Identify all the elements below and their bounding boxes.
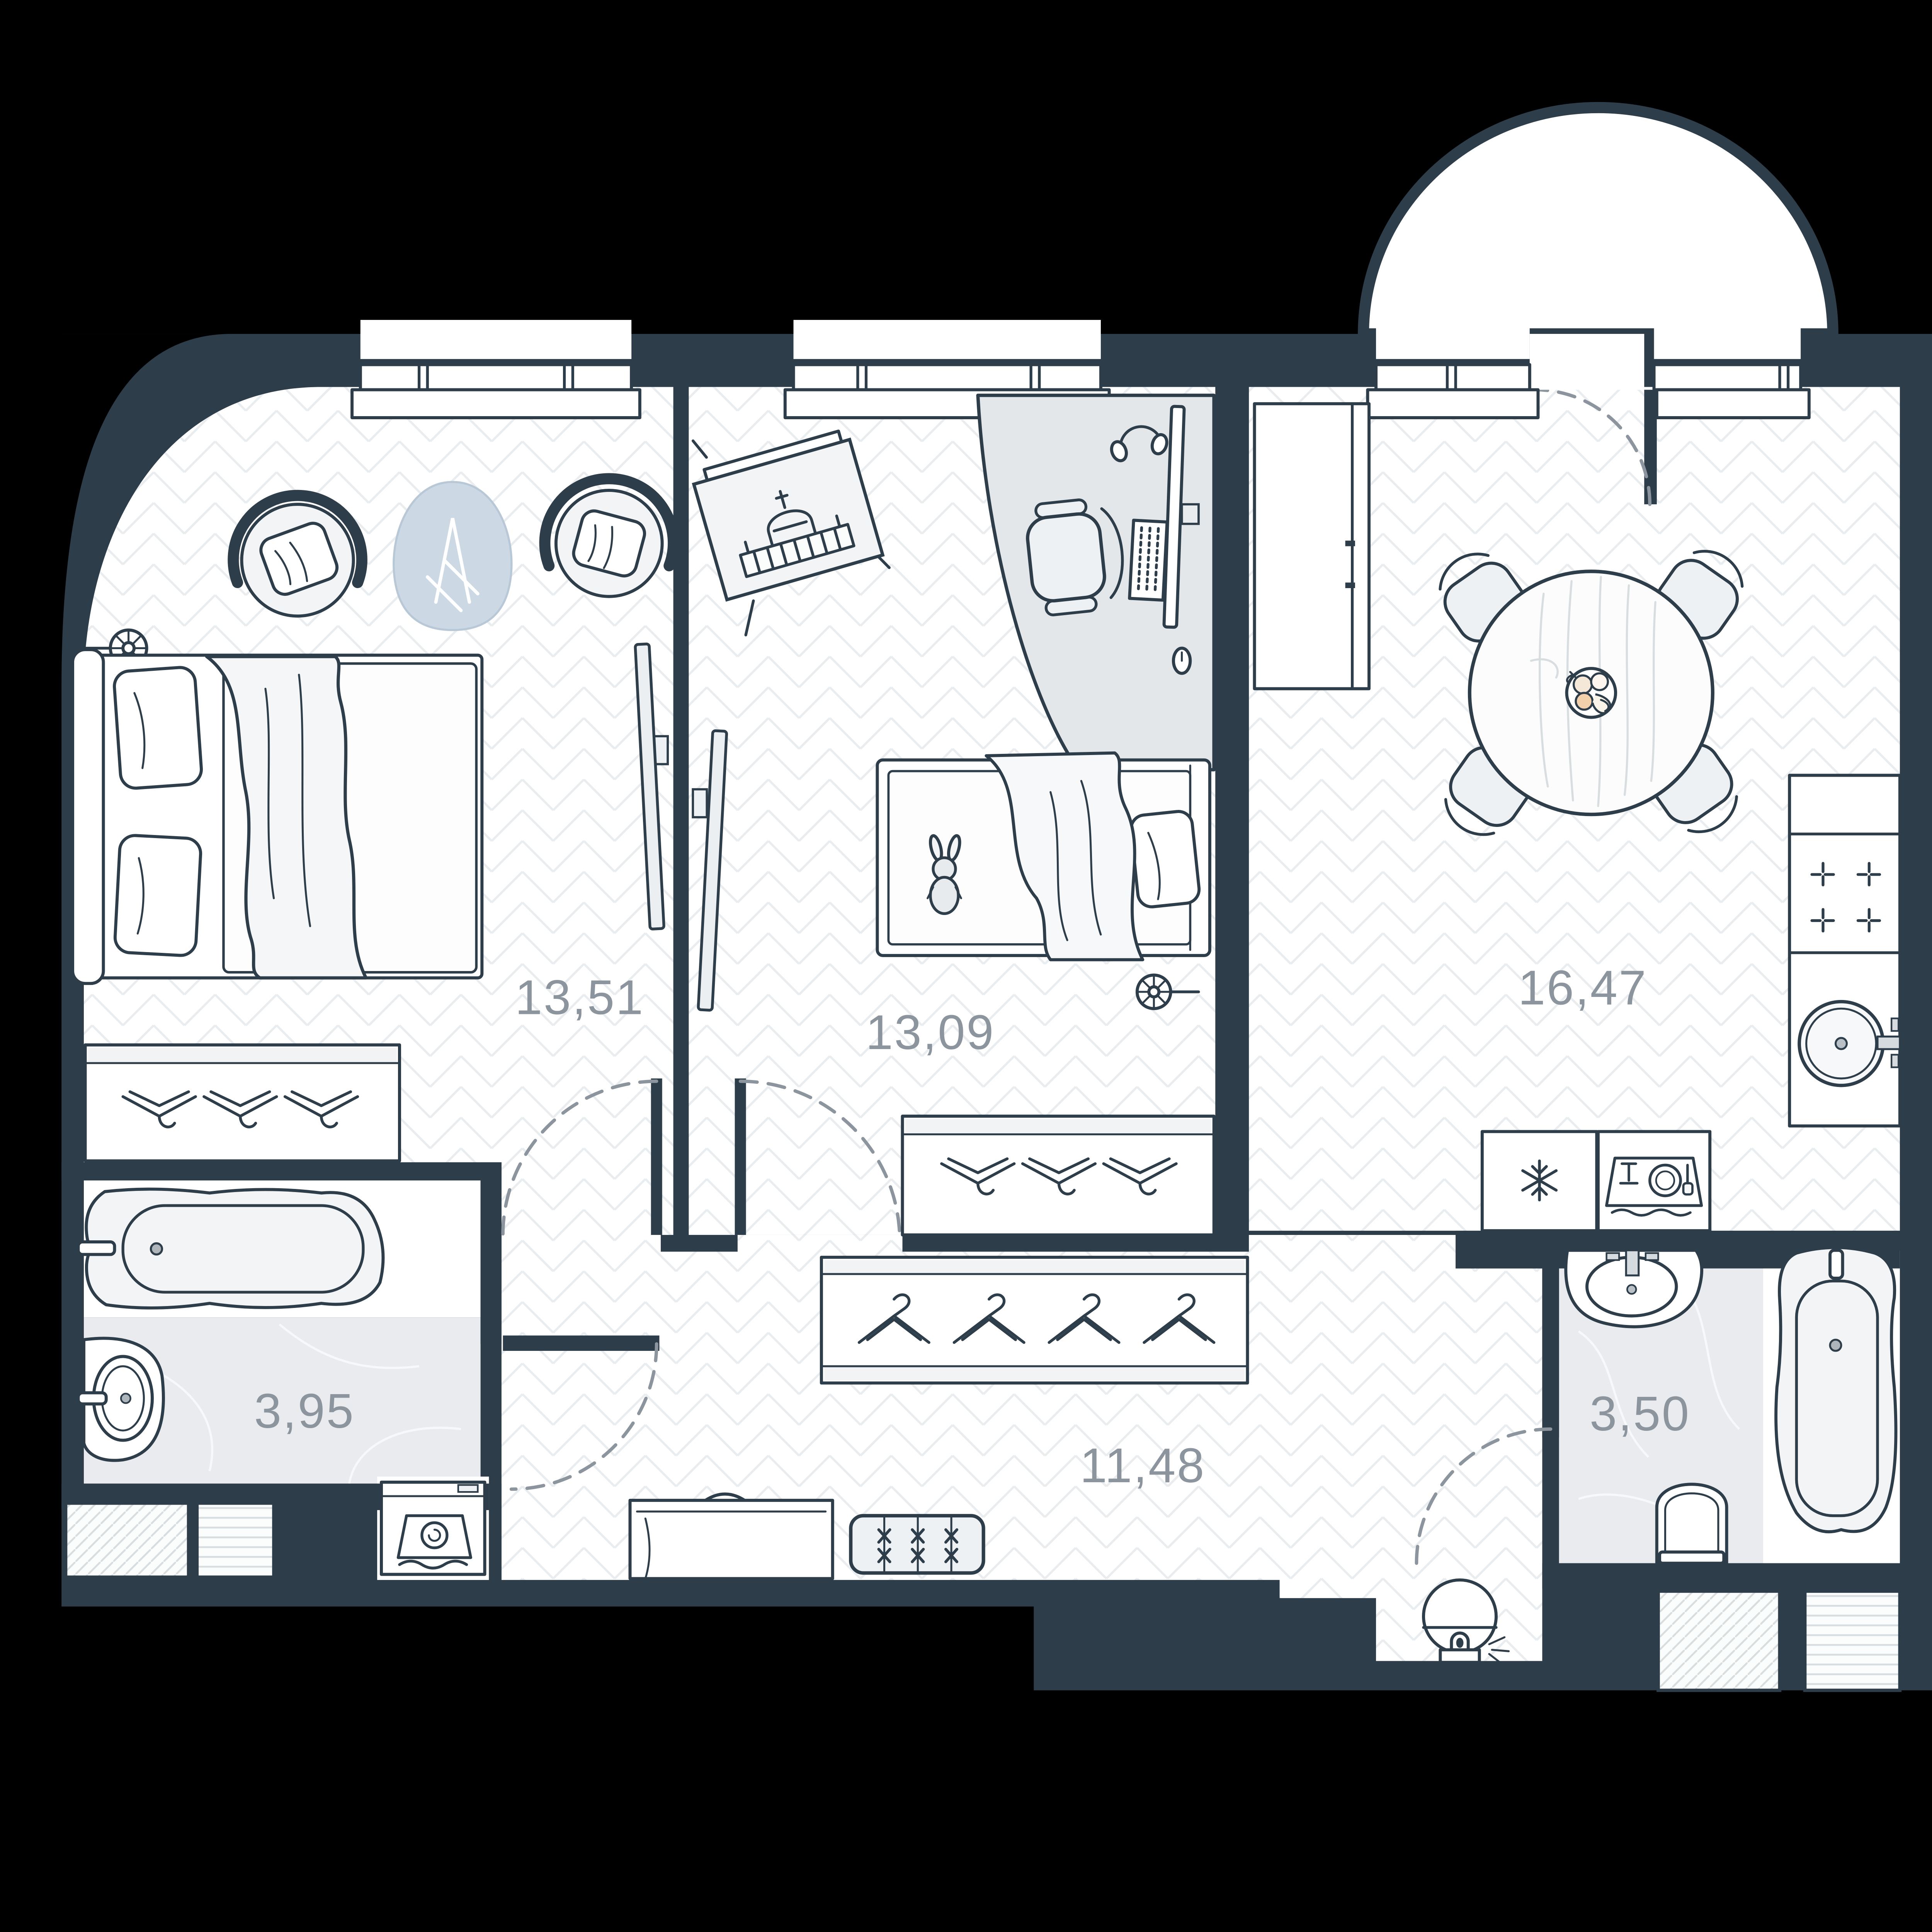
balcony (1364, 107, 1833, 334)
wall-toilet-left (1542, 1269, 1559, 1437)
balcony-door-leaf (1644, 390, 1657, 504)
rug (394, 482, 512, 630)
bathtub (78, 1189, 383, 1308)
double-bed (73, 650, 482, 983)
bench (851, 1516, 983, 1573)
wall-children-kitchen (1215, 387, 1249, 1235)
single-bed (877, 753, 1209, 960)
background-left (0, 689, 61, 1690)
vent-shaft-diagonal-2 (1658, 1591, 1780, 1690)
dining-table (1469, 571, 1713, 815)
room-label-toilet: 3,50 (1590, 1386, 1690, 1441)
fridge (1482, 1131, 1597, 1231)
background-bottom-left (0, 1607, 1034, 1690)
room-label-hallway: 11,48 (1080, 1438, 1206, 1493)
dishwasher (1598, 1131, 1710, 1231)
wardrobe-bedroom (85, 1045, 400, 1161)
vent-shaft-horizontal (197, 1503, 274, 1577)
bathroom-door-leaf (503, 1335, 660, 1351)
vent-shaft-diагonal (66, 1503, 189, 1577)
sink-toilet-room (1566, 1250, 1702, 1327)
tall-cabinet (1255, 404, 1369, 689)
wall-toilet-bottom (1542, 1563, 1900, 1588)
wall-bathroom-right (481, 1162, 502, 1344)
keyboard (1129, 520, 1167, 600)
toilet (1657, 1484, 1727, 1563)
bedroom-door-leaf (651, 1078, 662, 1235)
mouse (1173, 648, 1190, 673)
sink-bathroom (78, 1338, 163, 1461)
room-label-children: 13,09 (866, 1005, 995, 1060)
washing-machine (381, 1482, 485, 1575)
wall-hall-doorpier (661, 1235, 738, 1252)
bathtub-toilet-room (1776, 1247, 1896, 1532)
wall-bedroom-children (673, 387, 689, 1235)
window-bedroom (352, 320, 640, 418)
wall-niche-divider (489, 1483, 502, 1580)
children-door-leaf (735, 1078, 746, 1235)
wardrobe-children (903, 1116, 1214, 1235)
fruit-bowl (1567, 668, 1616, 718)
shoe-cabinet (630, 1494, 833, 1579)
wall-under-closet (903, 1235, 1249, 1252)
room-label-kitchen: 16,47 (1518, 960, 1648, 1015)
kitchen-counter (1789, 776, 1900, 1126)
wall-bathroom-top (61, 1162, 502, 1180)
room-label-bedroom: 13,51 (515, 970, 645, 1025)
room-label-bathroom: 3,95 (254, 1383, 355, 1438)
floor-plan: 13,51 13,09 16,47 3,95 11,48 3,50 (0, 0, 1932, 1932)
closet-hangers (821, 1257, 1248, 1383)
vent-shaft-horizontal-2 (1805, 1591, 1900, 1690)
floor-plan-stage: 13,51 13,09 16,47 3,95 11,48 3,50 (0, 0, 1932, 1932)
